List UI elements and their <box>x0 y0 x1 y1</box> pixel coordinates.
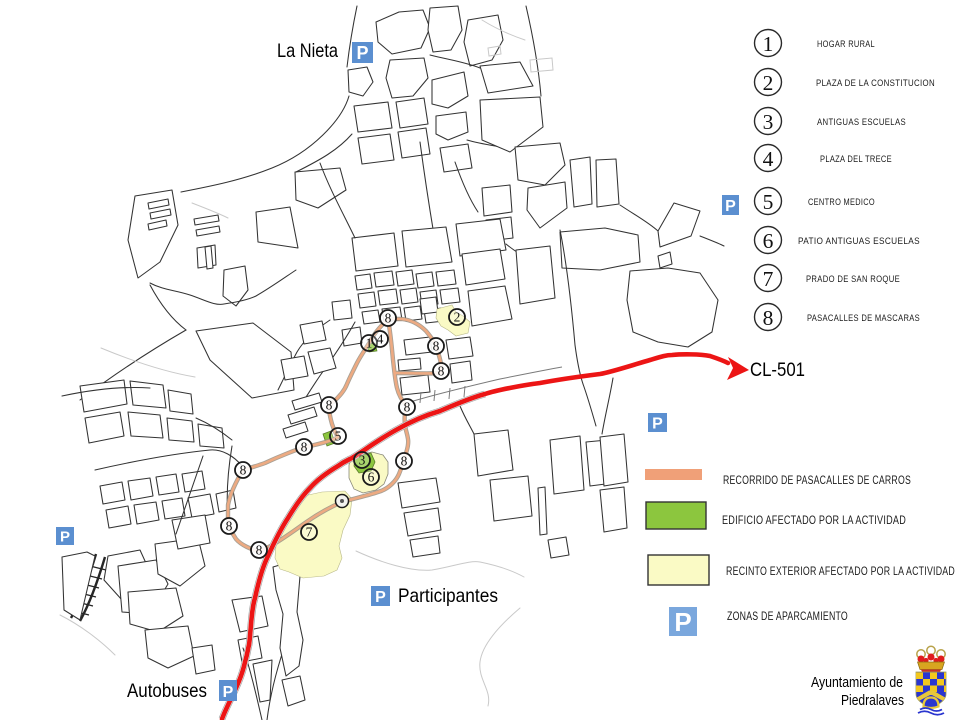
svg-text:P: P <box>652 416 663 433</box>
svg-text:P: P <box>356 43 368 63</box>
svg-text:6: 6 <box>763 229 774 253</box>
svg-text:HOGAR RURAL: HOGAR RURAL <box>817 39 875 50</box>
svg-text:Participantes: Participantes <box>398 585 498 607</box>
svg-text:8: 8 <box>438 364 445 379</box>
svg-text:PASACALLES DE MASCARAS: PASACALLES DE MASCARAS <box>807 313 920 324</box>
svg-text:8: 8 <box>301 440 308 455</box>
svg-text:P: P <box>674 607 691 637</box>
svg-text:P: P <box>223 684 234 701</box>
svg-text:P: P <box>725 198 736 215</box>
svg-text:RECINTO EXTERIOR AFECTADO POR: RECINTO EXTERIOR AFECTADO POR LA ACTIVID… <box>726 566 955 578</box>
svg-text:7: 7 <box>763 267 774 291</box>
svg-text:8: 8 <box>404 400 411 415</box>
svg-text:8: 8 <box>401 454 408 469</box>
svg-text:7: 7 <box>306 525 313 540</box>
svg-text:CL-501: CL-501 <box>750 359 805 381</box>
svg-text:8: 8 <box>226 519 233 534</box>
svg-text:8: 8 <box>433 339 440 354</box>
svg-text:5: 5 <box>763 190 774 214</box>
svg-text:PLAZA DEL TRECE: PLAZA DEL TRECE <box>820 154 892 165</box>
svg-text:8: 8 <box>385 311 392 326</box>
svg-text:8: 8 <box>256 543 263 558</box>
svg-text:4: 4 <box>763 147 774 171</box>
svg-text:3: 3 <box>763 110 774 134</box>
svg-text:2: 2 <box>454 310 461 325</box>
svg-text:PLAZA DE LA CONSTITUCION: PLAZA DE LA CONSTITUCION <box>816 78 935 89</box>
svg-text:2: 2 <box>763 71 774 95</box>
svg-text:Ayuntamiento de: Ayuntamiento de <box>811 675 903 691</box>
svg-text:La Nieta: La Nieta <box>277 40 338 62</box>
svg-text:1: 1 <box>763 32 774 56</box>
svg-text:8: 8 <box>326 398 333 413</box>
svg-text:4: 4 <box>377 332 384 347</box>
svg-text:P: P <box>60 529 70 546</box>
svg-text:RECORRIDO DE PASACALLES DE CAR: RECORRIDO DE PASACALLES DE CARROS <box>723 475 911 487</box>
svg-text:8: 8 <box>763 306 774 330</box>
svg-text:6: 6 <box>368 470 375 485</box>
svg-text:5: 5 <box>335 429 342 444</box>
svg-text:8: 8 <box>240 463 247 478</box>
svg-text:Piedralaves: Piedralaves <box>841 693 904 709</box>
svg-text:ANTIGUAS ESCUELAS: ANTIGUAS ESCUELAS <box>817 117 906 128</box>
svg-text:PATIO ANTIGUAS ESCUELAS: PATIO ANTIGUAS ESCUELAS <box>798 236 920 247</box>
svg-text:PRADO DE SAN ROQUE: PRADO DE SAN ROQUE <box>806 274 900 285</box>
svg-text:EDIFICIO AFECTADO POR LA ACTIV: EDIFICIO AFECTADO POR LA ACTIVIDAD <box>722 515 906 527</box>
svg-text:P: P <box>375 589 386 606</box>
svg-text:Autobuses: Autobuses <box>127 680 207 702</box>
svg-text:ZONAS DE APARCAMIENTO: ZONAS DE APARCAMIENTO <box>727 611 848 623</box>
svg-text:3: 3 <box>359 453 366 468</box>
svg-text:CENTRO MEDICO: CENTRO MEDICO <box>808 197 875 208</box>
